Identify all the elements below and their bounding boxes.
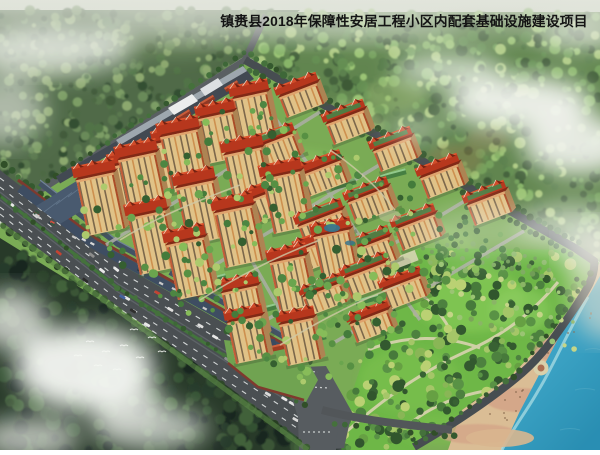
svg-text:镇赉县2018年保障性安居工程小区内配套基础设施建设项目: 镇赉县2018年保障性安居工程小区内配套基础设施建设项目 xyxy=(220,13,587,29)
